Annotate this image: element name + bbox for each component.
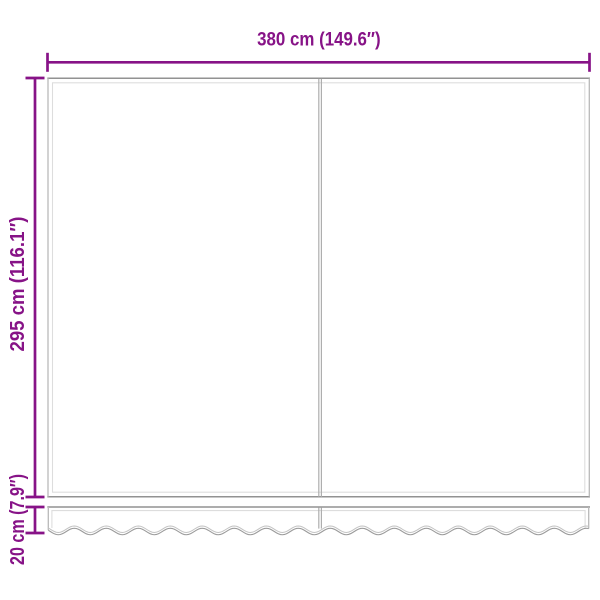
svg-text:295 cm (116.1″): 295 cm (116.1″) bbox=[7, 217, 29, 352]
svg-text:20 cm (7.9″): 20 cm (7.9″) bbox=[7, 474, 29, 565]
svg-text:380 cm (149.6″): 380 cm (149.6″) bbox=[257, 28, 381, 50]
